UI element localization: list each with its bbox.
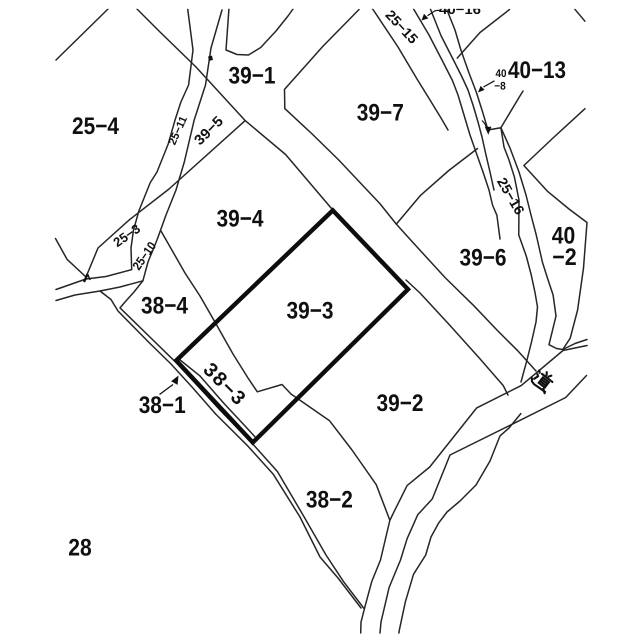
svg-text:−2: −2 — [552, 244, 577, 271]
svg-text:39−2: 39−2 — [377, 390, 424, 417]
svg-text:28: 28 — [68, 535, 92, 562]
svg-text:38−2: 38−2 — [306, 487, 353, 514]
svg-text:38−1: 38−1 — [139, 392, 186, 419]
svg-text:39−6: 39−6 — [460, 244, 507, 271]
svg-text:−8: −8 — [494, 81, 506, 93]
svg-text:25−4: 25−4 — [72, 113, 120, 140]
svg-text:39−7: 39−7 — [357, 100, 404, 127]
svg-text:40: 40 — [496, 68, 507, 80]
svg-text:39−3: 39−3 — [287, 298, 334, 325]
svg-text:39−1: 39−1 — [229, 63, 276, 90]
svg-text:38−4: 38−4 — [141, 293, 189, 320]
svg-text:40−13: 40−13 — [508, 57, 566, 84]
svg-text:39−4: 39−4 — [217, 206, 265, 233]
